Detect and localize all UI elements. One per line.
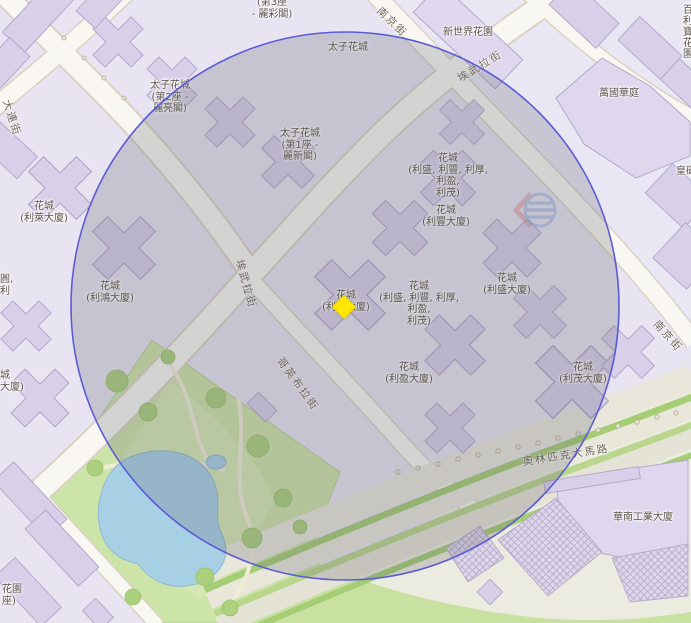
map-canvas[interactable]: 太子花城(第3座- 麗彩閣)太子花城(第2座 -麗亮閣)太子花城(第1座 -麗新… [0, 0, 691, 623]
